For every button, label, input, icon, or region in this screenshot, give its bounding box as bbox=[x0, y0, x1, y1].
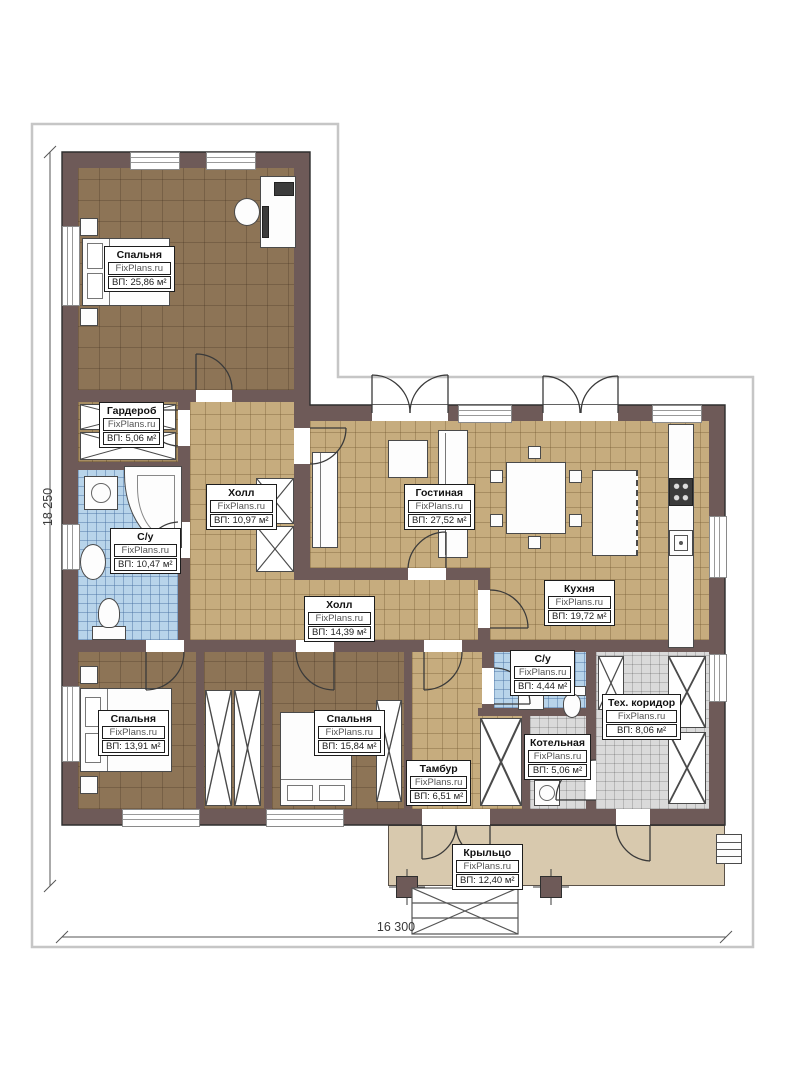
wall-bedroom1-south bbox=[78, 390, 310, 402]
watermark: FixPlans.ru bbox=[606, 710, 677, 723]
tech-closet bbox=[668, 732, 706, 804]
room-label-boiler: Котельная FixPlans.ru ВП: 5,06 м² bbox=[524, 734, 591, 780]
room-name: С/у bbox=[114, 531, 177, 543]
door-gap-tambour bbox=[424, 640, 462, 652]
chair bbox=[569, 470, 582, 483]
window-kitchen-top bbox=[652, 405, 702, 423]
floor-plan: Спальня FixPlans.ru ВП: 25,86 м² Гардеро… bbox=[0, 0, 792, 1080]
watermark: FixPlans.ru bbox=[528, 750, 587, 763]
dimension-height: 18 250 bbox=[41, 477, 55, 537]
toilet bbox=[563, 694, 581, 718]
kitchen-island bbox=[592, 470, 638, 556]
door-gap-french-kitchen bbox=[543, 405, 618, 421]
watermark: FixPlans.ru bbox=[318, 726, 381, 739]
pillow bbox=[319, 785, 345, 801]
room-area: ВП: 15,84 м² bbox=[318, 740, 381, 753]
watermark: FixPlans.ru bbox=[210, 500, 273, 513]
watermark: FixPlans.ru bbox=[456, 860, 519, 873]
room-name: Кухня bbox=[548, 583, 611, 595]
door-gap-wardrobe bbox=[178, 410, 190, 446]
room-name: Котельная bbox=[528, 737, 587, 749]
room-label-bedroom-3: Спальня FixPlans.ru ВП: 15,84 м² bbox=[314, 710, 385, 756]
wall-closet-bedroom3 bbox=[264, 652, 272, 809]
room-name: Холл bbox=[308, 599, 371, 611]
nightstand bbox=[80, 666, 98, 684]
washbasin bbox=[80, 544, 106, 580]
wall-living-hallmid bbox=[294, 568, 490, 580]
window-living-top bbox=[458, 405, 512, 423]
door-gap-french-living bbox=[372, 405, 448, 421]
door-gap-bathroom2 bbox=[482, 668, 494, 704]
nightstand bbox=[80, 218, 98, 236]
wall-right bbox=[709, 405, 725, 825]
watermark: FixPlans.ru bbox=[103, 418, 160, 431]
boiler-icon bbox=[534, 780, 560, 806]
watermark: FixPlans.ru bbox=[548, 596, 611, 609]
room-name: Тамбур bbox=[410, 763, 467, 775]
pillow bbox=[87, 243, 103, 269]
watermark: FixPlans.ru bbox=[114, 544, 177, 557]
room-area: ВП: 10,47 м² bbox=[114, 558, 177, 571]
coffee-table bbox=[388, 440, 428, 478]
dining-table bbox=[506, 462, 566, 534]
chair bbox=[490, 514, 503, 527]
watermark: FixPlans.ru bbox=[102, 726, 165, 739]
room-area: ВП: 25,86 м² bbox=[108, 276, 171, 289]
porch-ladder bbox=[716, 834, 742, 864]
chair bbox=[528, 446, 541, 459]
window-bedroom2-left bbox=[62, 686, 80, 762]
stove-icon bbox=[669, 478, 693, 506]
door-gap-hall-kitchen bbox=[478, 590, 490, 628]
room-area: ВП: 4,44 м² bbox=[514, 680, 571, 693]
wall-top-wing bbox=[62, 152, 310, 168]
washing-machine-icon bbox=[84, 476, 118, 510]
window-bedroom2-bottom bbox=[122, 809, 200, 827]
room-area: ВП: 5,06 м² bbox=[528, 764, 587, 777]
room-label-bathroom-2: С/у FixPlans.ru ВП: 4,44 м² bbox=[510, 650, 575, 696]
room-label-hall-center: Холл FixPlans.ru ВП: 14,39 м² bbox=[304, 596, 375, 642]
room-name: С/у bbox=[514, 653, 571, 665]
window-tech-right bbox=[709, 654, 727, 702]
room-name: Спальня bbox=[318, 713, 381, 725]
door-gap-porch-side bbox=[616, 809, 650, 825]
pillow bbox=[87, 273, 103, 299]
room-area: ВП: 19,72 м² bbox=[548, 610, 611, 623]
watermark: FixPlans.ru bbox=[410, 776, 467, 789]
window-bathroom1-left bbox=[62, 524, 80, 570]
room-area: ВП: 13,91 м² bbox=[102, 740, 165, 753]
chair bbox=[490, 470, 503, 483]
door-gap-bedroom1 bbox=[196, 390, 232, 402]
office-chair bbox=[234, 198, 260, 226]
kitchen-sink-icon bbox=[669, 530, 693, 556]
wall-bedroom2-closet bbox=[196, 652, 204, 809]
room-area: ВП: 14,39 м² bbox=[308, 626, 371, 639]
room-area: ВП: 10,97 м² bbox=[210, 514, 273, 527]
chair bbox=[569, 514, 582, 527]
window-bedroom1-left bbox=[62, 226, 80, 306]
printer-icon bbox=[274, 182, 294, 196]
tambour-closet bbox=[480, 718, 522, 806]
window-bedroom3-bottom bbox=[266, 809, 344, 827]
nightstand bbox=[80, 776, 98, 794]
porch-column bbox=[396, 876, 418, 898]
room-label-tech-corridor: Тех. коридор FixPlans.ru ВП: 8,06 м² bbox=[602, 694, 681, 740]
window-kitchen-right bbox=[709, 516, 727, 578]
room-area: ВП: 27,52 м² bbox=[408, 514, 471, 527]
room-label-bathroom-1: С/у FixPlans.ru ВП: 10,47 м² bbox=[110, 528, 181, 574]
bedroom-closet bbox=[205, 690, 232, 806]
watermark: FixPlans.ru bbox=[408, 500, 471, 513]
room-name: Крыльцо bbox=[456, 847, 519, 859]
room-area: ВП: 12,40 м² bbox=[456, 874, 519, 887]
door-gap-living-hall bbox=[408, 568, 446, 580]
watermark: FixPlans.ru bbox=[514, 666, 571, 679]
room-label-porch: Крыльцо FixPlans.ru ВП: 12,40 м² bbox=[452, 844, 523, 890]
room-label-kitchen: Кухня FixPlans.ru ВП: 19,72 м² bbox=[544, 580, 615, 626]
watermark: FixPlans.ru bbox=[108, 262, 171, 275]
door-gap-hall-living bbox=[294, 428, 310, 464]
room-label-wardrobe: Гардероб FixPlans.ru ВП: 5,06 м² bbox=[99, 402, 164, 448]
door-gap-entrance bbox=[422, 809, 490, 825]
room-name: Гардероб bbox=[103, 405, 160, 417]
porch-column bbox=[540, 876, 562, 898]
room-area: ВП: 5,06 м² bbox=[103, 432, 160, 445]
room-name: Спальня bbox=[102, 713, 165, 725]
pillow bbox=[287, 785, 313, 801]
room-name: Спальня bbox=[108, 249, 171, 261]
sofa bbox=[312, 452, 338, 548]
room-label-hall-upper: Холл FixPlans.ru ВП: 10,97 м² bbox=[206, 484, 277, 530]
entry-steps bbox=[412, 888, 518, 934]
nightstand bbox=[80, 308, 98, 326]
hall-closet bbox=[256, 526, 294, 572]
room-label-tambour: Тамбур FixPlans.ru ВП: 6,51 м² bbox=[406, 760, 471, 806]
wall-wing-right bbox=[294, 152, 310, 421]
window-wing-top-1 bbox=[130, 152, 180, 170]
room-area: ВП: 8,06 м² bbox=[606, 724, 677, 737]
chair bbox=[528, 536, 541, 549]
monitor-icon bbox=[262, 206, 269, 238]
watermark: FixPlans.ru bbox=[308, 612, 371, 625]
room-label-bedroom-1: Спальня FixPlans.ru ВП: 25,86 м² bbox=[104, 246, 175, 292]
toilet bbox=[98, 598, 120, 628]
room-name: Тех. коридор bbox=[606, 697, 677, 709]
room-label-living: Гостиная FixPlans.ru ВП: 27,52 м² bbox=[404, 484, 475, 530]
bedroom-closet bbox=[234, 690, 261, 806]
dimension-width: 16 300 bbox=[366, 920, 426, 934]
window-wing-top-2 bbox=[206, 152, 256, 170]
room-area: ВП: 6,51 м² bbox=[410, 790, 467, 803]
toilet-tank bbox=[92, 626, 126, 640]
door-gap-bedroom2 bbox=[146, 640, 184, 652]
room-name: Гостиная bbox=[408, 487, 471, 499]
room-name: Холл bbox=[210, 487, 273, 499]
room-label-bedroom-2: Спальня FixPlans.ru ВП: 13,91 м² bbox=[98, 710, 169, 756]
